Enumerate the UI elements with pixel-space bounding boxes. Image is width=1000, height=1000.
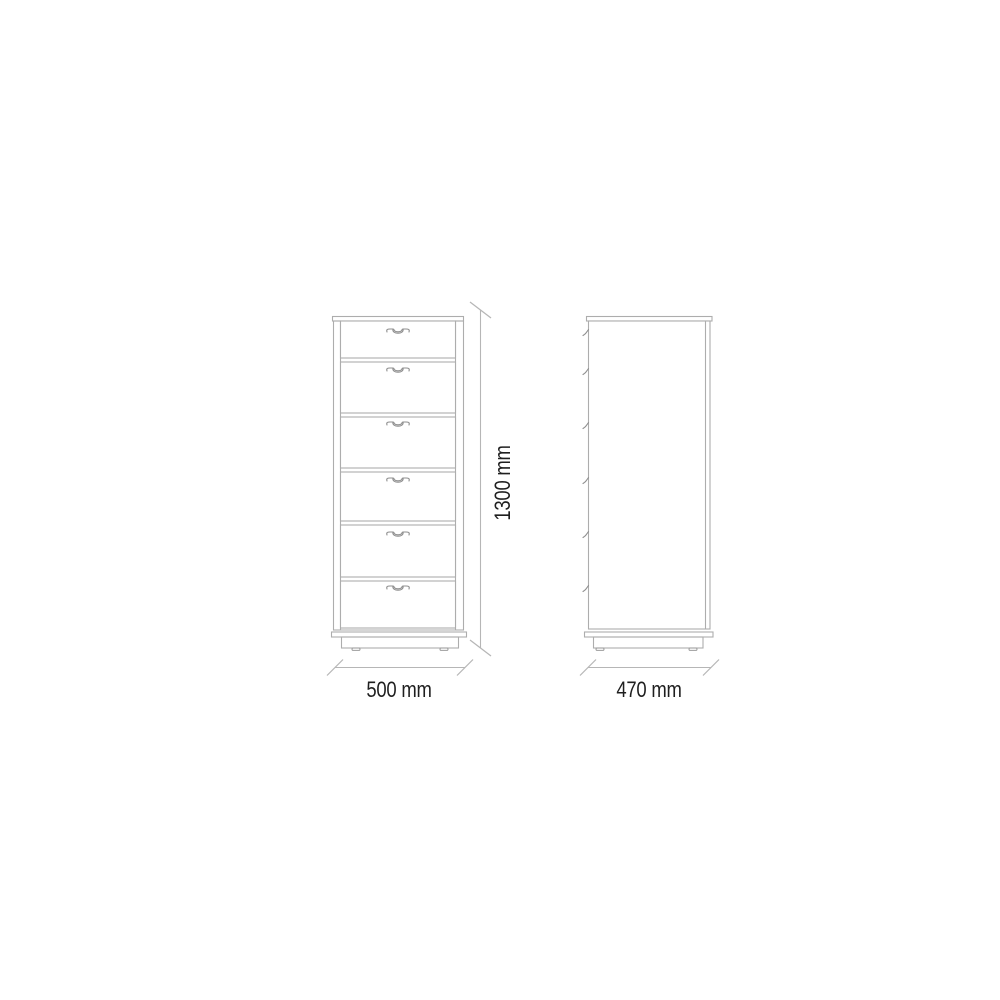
height-dimension (470, 302, 491, 656)
drawer-front (341, 581, 456, 628)
height-dimension-label: 1300 mm (490, 445, 516, 520)
front-right-panel (456, 321, 464, 630)
width-dimension-label: 500 mm (366, 677, 431, 703)
depth-dimension-label: 470 mm (616, 677, 681, 703)
front-left-foot (352, 648, 360, 650)
side-front-foot (596, 648, 604, 650)
side-base-board (585, 632, 714, 637)
front-top-panel (333, 317, 464, 322)
front-plinth (342, 637, 459, 648)
drawer-handle-side-icon (583, 330, 589, 336)
drawer-handle-side-icon (583, 478, 589, 484)
drawer-handle-side-icon (583, 423, 589, 429)
side-back-foot (689, 648, 697, 650)
drawer-front (341, 472, 456, 521)
drawer-front (341, 525, 456, 577)
front-base-board (332, 632, 467, 637)
drawing-canvas: 500 mm 470 mm 1300 mm (0, 0, 1000, 1000)
side-plinth (594, 637, 704, 648)
front-view (332, 317, 467, 651)
drawer-handle-side-icon (583, 586, 589, 592)
side-body (589, 321, 711, 629)
width-dimension (327, 660, 473, 676)
drawer-handle-side-icon (583, 369, 589, 375)
depth-dimension (580, 660, 719, 676)
front-right-foot (440, 648, 448, 650)
drawer-front (341, 362, 456, 413)
side-view (583, 317, 713, 651)
front-left-panel (334, 321, 341, 630)
side-top-panel (587, 317, 713, 322)
drawer-front (341, 321, 456, 358)
drawer-handle-side-icon (583, 532, 589, 538)
